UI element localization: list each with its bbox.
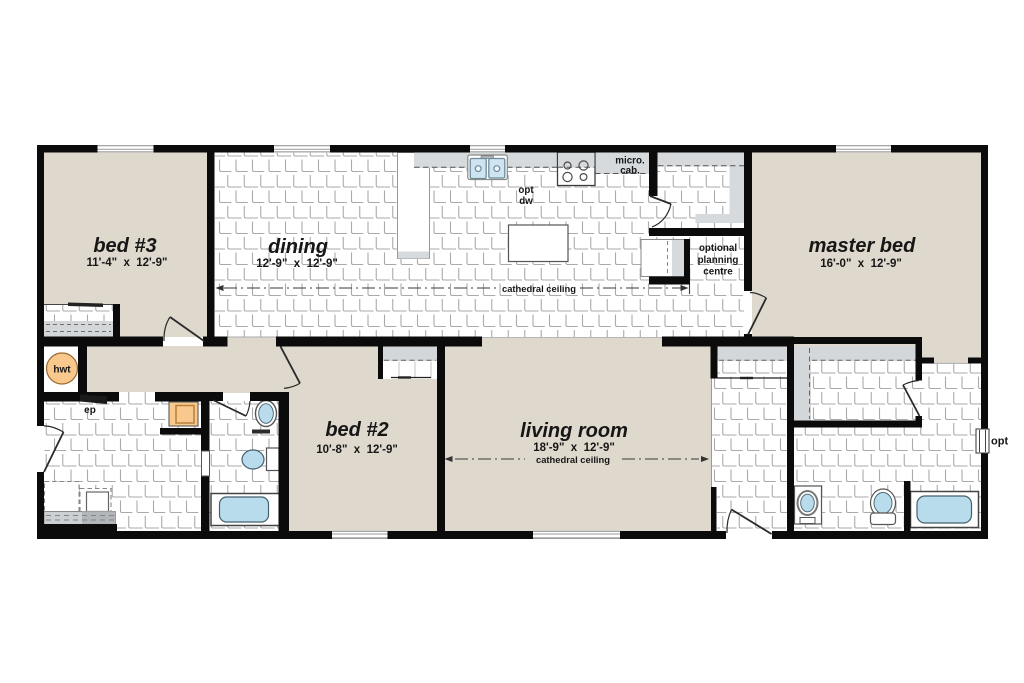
svg-text:18'-9" x 12'-9": 18'-9" x 12'-9" — [533, 442, 615, 454]
svg-text:cathedral ceiling: cathedral ceiling — [536, 454, 610, 465]
svg-text:optional: optional — [699, 243, 737, 254]
svg-text:living room: living room — [520, 420, 628, 442]
svg-text:dw: dw — [519, 196, 533, 207]
svg-text:bed #3: bed #3 — [93, 235, 156, 257]
svg-text:opt: opt — [518, 185, 534, 196]
svg-text:cathedral ceiling: cathedral ceiling — [502, 283, 576, 294]
svg-text:planning: planning — [698, 255, 739, 266]
svg-text:opt: opt — [991, 436, 1008, 448]
svg-text:bed #2: bed #2 — [325, 419, 388, 441]
svg-text:12'-9" x 12'-9": 12'-9" x 12'-9" — [256, 258, 338, 270]
svg-text:16'-0" x 12'-9": 16'-0" x 12'-9" — [820, 258, 902, 270]
svg-text:master bed: master bed — [809, 235, 916, 257]
svg-text:10'-8" x 12'-9": 10'-8" x 12'-9" — [316, 444, 398, 456]
svg-text:hwt: hwt — [53, 365, 71, 376]
svg-text:cab.: cab. — [620, 166, 640, 177]
svg-text:ep: ep — [84, 405, 96, 416]
svg-text:11'-4" x 12'-9": 11'-4" x 12'-9" — [87, 257, 168, 269]
svg-text:dining: dining — [268, 236, 328, 258]
svg-text:centre: centre — [703, 267, 733, 278]
